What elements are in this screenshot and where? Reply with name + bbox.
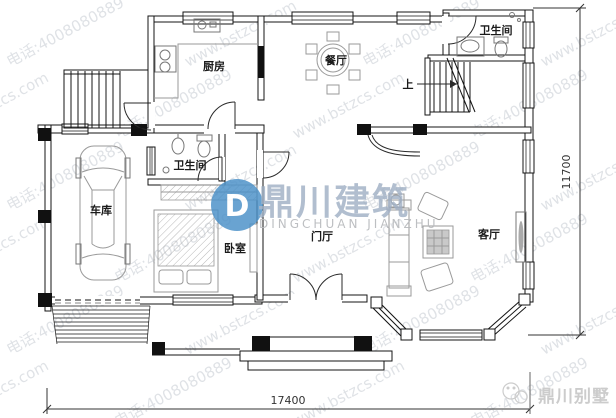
watermark-text: www.bstzcs.com	[181, 0, 299, 71]
room-label-garage: 车库	[90, 203, 112, 217]
armchair	[420, 262, 453, 292]
brand-footer-text: 鼎川别墅	[538, 387, 610, 407]
window-top-dining-1	[292, 12, 353, 24]
window-top-kitchen	[183, 12, 233, 24]
floor-plan-image: www.bstzcs.com电话:4008080889www.bstzcs.co…	[0, 0, 616, 418]
arch-opening	[368, 135, 420, 156]
dimension-width-label: 17400	[271, 394, 306, 407]
floor-drain-icon	[163, 167, 169, 173]
window-bath-mid-left	[147, 147, 155, 175]
toilet-icon	[197, 135, 212, 141]
watermark-text: www.bstzcs.com	[0, 212, 52, 286]
sink-icon	[172, 138, 184, 154]
window-top-dining-2	[397, 12, 430, 24]
watermark-text: 电话:4008080889	[3, 137, 127, 214]
dimension-bottom: 17400	[43, 372, 534, 414]
watermark-text: 电话:4008080889	[467, 353, 591, 418]
window-garage-top	[62, 124, 88, 134]
toilet-icon	[494, 37, 508, 43]
room-label-bedroom: 卧室	[224, 241, 246, 255]
watermark-text: 电话:4008080889	[3, 281, 127, 358]
watermark-text: www.bstzcs.com	[0, 356, 52, 418]
watermark-text: www.bstzcs.com	[537, 140, 616, 214]
room-label-kitchen: 厨房	[203, 59, 225, 73]
room-label-dining: 餐厅	[324, 53, 347, 67]
stairs-up-label: 上	[403, 77, 414, 91]
watermark-text: 电话:4008080889	[111, 353, 235, 418]
brand-logo-watermark: D 鼎川建筑 DINGCHUAN JIANZHU	[211, 179, 439, 231]
dimension-height-label: 11700	[560, 155, 573, 190]
bed	[154, 210, 218, 292]
bedroom-shelf	[250, 224, 257, 272]
room-label-hall: 门厅	[311, 229, 333, 243]
room-label-living: 客厅	[477, 227, 500, 241]
logo-name-en: DINGCHUAN JIANZHU	[259, 217, 439, 231]
logo-mark: D	[225, 189, 250, 224]
floor-plan-svg: www.bstzcs.com电话:4008080889www.bstzcs.co…	[0, 0, 616, 418]
watermark-text: 电话:4008080889	[359, 281, 483, 358]
watermark-text: 电话:4008080889	[3, 0, 127, 71]
room-label-bath-mid: 卫生间	[174, 158, 207, 172]
window-bedroom-bottom	[173, 295, 233, 305]
watermark-text: www.bstzcs.com	[537, 284, 616, 358]
room-label-bath-top: 卫生间	[480, 23, 513, 37]
